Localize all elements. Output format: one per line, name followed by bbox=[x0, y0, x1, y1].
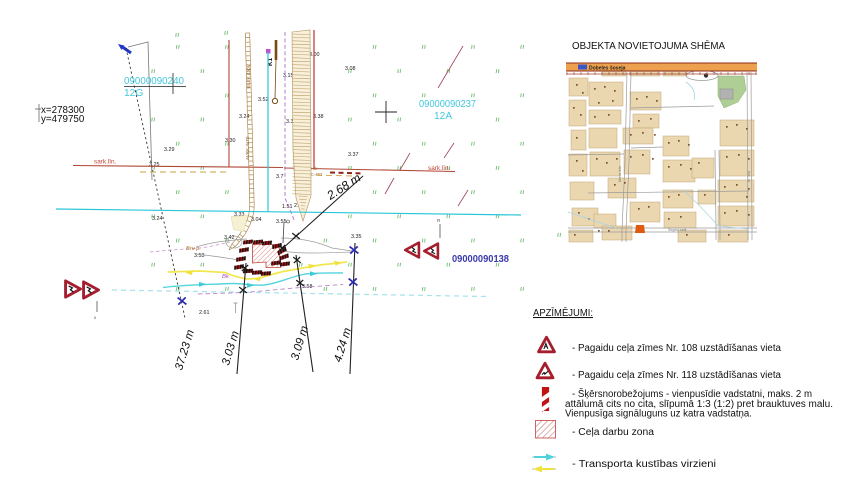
svg-text:3.35: 3.35 bbox=[351, 234, 362, 240]
svg-text:Kr. iela: Kr. iela bbox=[747, 171, 751, 182]
svg-text:3.24: 3.24 bbox=[239, 114, 250, 120]
svg-text:3.08: 3.08 bbox=[345, 66, 356, 72]
svg-text:2.61: 2.61 bbox=[199, 310, 210, 316]
svg-text:09000090237: 09000090237 bbox=[419, 99, 476, 110]
svg-text:3.29: 3.29 bbox=[164, 147, 175, 153]
svg-text:- Pagaidu ceļa zīmes Nr. 118 u: - Pagaidu ceļa zīmes Nr. 118 uzstādīšana… bbox=[572, 370, 782, 381]
svg-text:Bk: Bk bbox=[222, 274, 230, 280]
svg-text:3.55: 3.55 bbox=[276, 219, 287, 225]
svg-text:y=479750: y=479750 bbox=[41, 114, 85, 125]
svg-text:09000090138: 09000090138 bbox=[452, 254, 509, 265]
svg-text:sark.līn.: sark.līn. bbox=[428, 165, 451, 172]
svg-text:Vienpusīga signāluguns uz katr: Vienpusīga signāluguns uz katra vadstatņ… bbox=[565, 409, 752, 420]
svg-text:3.53: 3.53 bbox=[194, 253, 205, 259]
svg-text:3.7: 3.7 bbox=[276, 174, 284, 180]
svg-text:Segevi ceļš: Segevi ceļš bbox=[668, 228, 687, 232]
svg-text:ELEK 450V: ELEK 450V bbox=[246, 63, 251, 88]
svg-text:- Pagaidu ceļa zīmes Nr. 108 u: - Pagaidu ceļa zīmes Nr. 108 uzstādīšana… bbox=[572, 343, 782, 354]
svg-text:12A: 12A bbox=[434, 111, 452, 122]
svg-text:3.37: 3.37 bbox=[348, 152, 359, 158]
svg-text:AVRK 4x70: AVRK 4x70 bbox=[245, 136, 250, 160]
svg-text:12G: 12G bbox=[124, 88, 143, 99]
svg-text:3.24: 3.24 bbox=[152, 216, 163, 222]
svg-text:Miera iela: Miera iela bbox=[618, 166, 622, 182]
svg-text:x: x bbox=[94, 315, 97, 320]
svg-text:Dobeles šoseja: Dobeles šoseja bbox=[589, 66, 626, 72]
svg-text:37.23 m: 37.23 m bbox=[173, 328, 197, 372]
svg-text:09000090240: 09000090240 bbox=[124, 76, 184, 87]
svg-text:APZĪMĒJUMI:: APZĪMĒJUMI: bbox=[533, 307, 593, 319]
svg-text:- Ceļa darbu zona: - Ceļa darbu zona bbox=[572, 427, 655, 438]
svg-text:R: R bbox=[437, 218, 441, 223]
svg-text:3.52: 3.52 bbox=[258, 97, 269, 103]
svg-text:1.51: 1.51 bbox=[282, 204, 293, 210]
svg-text:- Transporta kustības virzieni: - Transporta kustības virzieni bbox=[572, 459, 716, 470]
svg-text:3.25: 3.25 bbox=[149, 162, 160, 168]
svg-text:3.09 m: 3.09 m bbox=[289, 324, 311, 362]
svg-text:3.30: 3.30 bbox=[225, 138, 236, 144]
svg-text:sark.līn.: sark.līn. bbox=[94, 159, 117, 166]
svg-text:Bru p.: Bru p. bbox=[186, 246, 201, 252]
svg-text:OBJEKTA NOVIETOJUMA SHĒMA: OBJEKTA NOVIETOJUMA SHĒMA bbox=[572, 40, 725, 52]
